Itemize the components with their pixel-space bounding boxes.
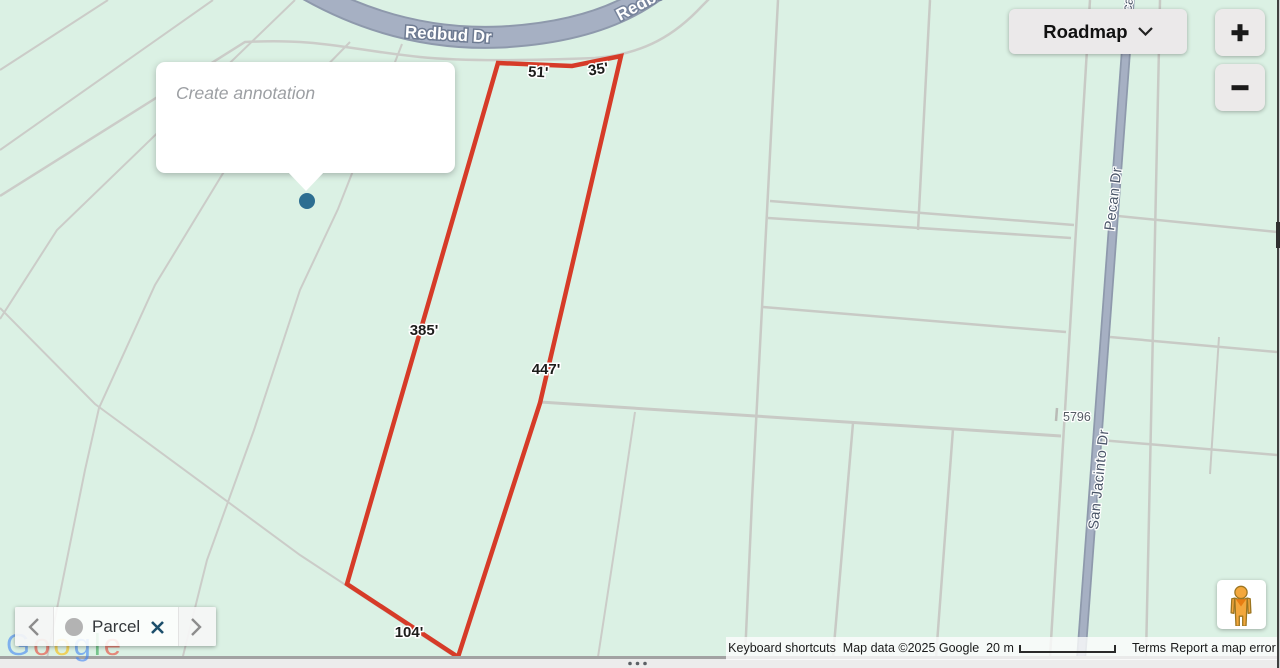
svg-text:35': 35' [587,60,610,80]
svg-text:Redbud Dr: Redbud Dr [404,22,492,46]
svg-text:104': 104' [395,624,424,641]
svg-text:5796: 5796 [1063,410,1091,424]
svg-text:Pecan Dr: Pecan Dr [1102,166,1126,231]
svg-text:385': 385' [410,322,439,339]
svg-text:447': 447' [532,361,561,378]
svg-text:51': 51' [528,63,549,81]
